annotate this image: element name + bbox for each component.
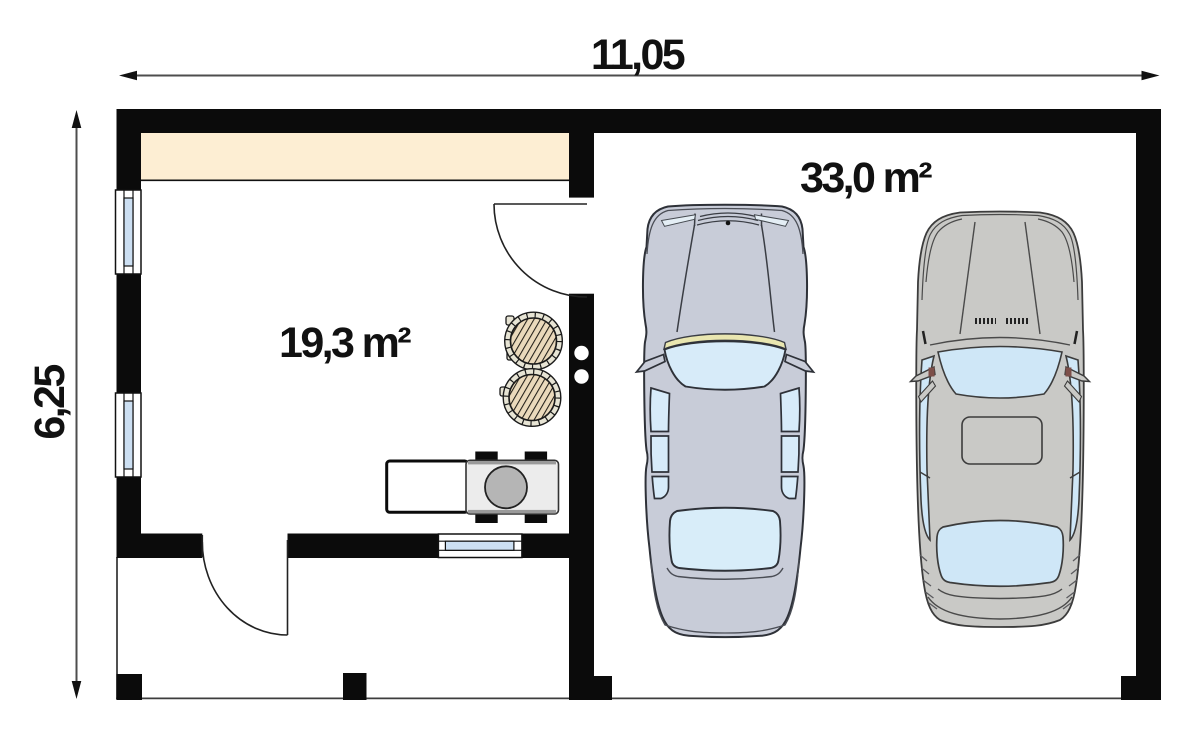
- svg-text:33,0 m²: 33,0 m²: [800, 154, 932, 202]
- svg-text:11,05: 11,05: [591, 31, 685, 79]
- svg-text:19,3 m²: 19,3 m²: [279, 319, 411, 367]
- svg-text:6,25: 6,25: [26, 365, 74, 440]
